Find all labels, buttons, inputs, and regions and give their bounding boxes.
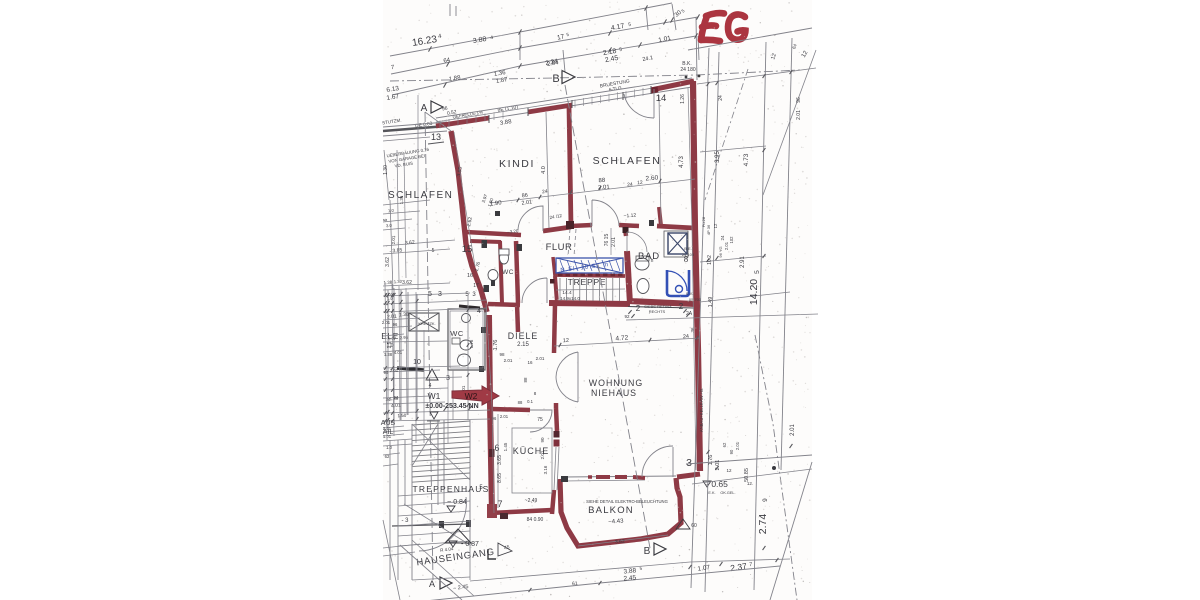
svg-text:2.01: 2.01 (500, 414, 509, 419)
svg-text:2.01: 2.01 (715, 460, 721, 471)
svg-text:12: 12 (637, 180, 643, 186)
svg-text:1.76: 1.76 (469, 339, 474, 348)
svg-text:16: 16 (467, 273, 473, 279)
svg-text:1.0: 1.0 (388, 208, 395, 214)
svg-text:3: 3 (686, 457, 692, 469)
svg-text:2.01: 2.01 (536, 356, 545, 361)
svg-text:2.01: 2.01 (382, 320, 391, 325)
svg-text:A: A (429, 579, 435, 589)
svg-text:SIEHE DETAIL ELEKTRO-BELEUCHTU: SIEHE DETAIL ELEKTRO-BELEUCHTUNG (586, 499, 668, 504)
svg-text:DIELE: DIELE (508, 331, 538, 341)
svg-text:WOHNUNG: WOHNUNG (589, 378, 643, 388)
svg-text:24 100: 24 100 (682, 252, 695, 257)
svg-text:4.01: 4.01 (394, 350, 403, 355)
svg-text:90: 90 (729, 449, 734, 454)
svg-text:2.45: 2.45 (623, 574, 637, 582)
svg-text:2.01: 2.01 (611, 237, 617, 247)
svg-text:TREPPENHAUS: TREPPENHAUS (413, 484, 490, 494)
svg-text:A: A (421, 103, 428, 114)
svg-text:2: 2 (636, 304, 641, 313)
svg-text:W2: W2 (465, 391, 478, 401)
svg-text:102: 102 (729, 236, 734, 244)
svg-text:88: 88 (523, 377, 528, 383)
svg-text:12: 12 (563, 338, 570, 344)
svg-text:24: 24 (683, 334, 690, 340)
svg-text:76 15: 76 15 (604, 234, 610, 247)
svg-text:1.26: 1.26 (680, 94, 686, 104)
svg-text:1.49: 1.49 (708, 297, 714, 308)
svg-text:62: 62 (722, 442, 727, 447)
svg-text:0.1: 0.1 (527, 399, 533, 404)
svg-text:10.2: 10.2 (707, 255, 713, 265)
svg-text:2.01: 2.01 (790, 424, 796, 436)
svg-text:6: 6 (494, 443, 499, 453)
svg-text:14.20: 14.20 (748, 279, 760, 305)
svg-text:16: 16 (527, 360, 533, 365)
svg-text:B: B (552, 73, 559, 85)
svg-text:4.0: 4.0 (541, 166, 547, 174)
svg-text:50.85: 50.85 (744, 468, 750, 482)
svg-text:ANBAU+KELLERW.+B.: ANBAU+KELLERW.+B. (699, 388, 704, 432)
svg-text:60: 60 (691, 523, 697, 529)
svg-text:1.30: 1.30 (383, 165, 389, 175)
svg-text:1.76: 1.76 (493, 340, 499, 351)
svg-text:90: 90 (540, 437, 545, 443)
svg-text:- 3: - 3 (401, 518, 409, 524)
svg-text:24 180: 24 180 (680, 67, 696, 73)
svg-text:24: 24 (718, 95, 724, 101)
svg-text:3.62: 3.62 (385, 257, 391, 267)
svg-text:~2.49: ~2.49 (525, 498, 538, 504)
svg-text:61: 61 (572, 581, 578, 588)
svg-text:24: 24 (542, 189, 549, 196)
svg-text:1.50: 1.50 (397, 413, 407, 419)
svg-text:24: 24 (627, 182, 633, 188)
svg-text:3.62: 3.62 (405, 239, 416, 246)
svg-text:E.K.: E.K. (708, 491, 715, 495)
svg-text:B: B (644, 546, 651, 557)
svg-text:E.K.: E.K. (686, 291, 694, 296)
svg-text:86: 86 (521, 193, 528, 200)
svg-text:14: 14 (656, 93, 667, 104)
svg-text:4.72: 4.72 (615, 335, 628, 343)
svg-text:3.0: 3.0 (386, 223, 393, 229)
svg-text:1.38: 1.38 (399, 312, 409, 319)
svg-text:2.60: 2.60 (645, 175, 658, 183)
svg-text:5: 5 (432, 248, 435, 254)
svg-text:2.01: 2.01 (598, 185, 611, 192)
svg-text:1.30: 1.30 (394, 279, 403, 285)
svg-text:5: 5 (428, 291, 432, 298)
svg-text:6: 6 (383, 218, 389, 221)
svg-text:SCHLAFEN: SCHLAFEN (593, 155, 662, 167)
svg-text:2.01: 2.01 (540, 450, 545, 459)
svg-text:RECHTS: RECHTS (649, 309, 666, 314)
svg-text:2.01: 2.01 (504, 358, 513, 363)
svg-text:~1.12: ~1.12 (623, 213, 636, 220)
svg-text:2.91: 2.91 (740, 256, 746, 268)
svg-text:4: 4 (477, 308, 481, 315)
svg-text:75: 75 (537, 417, 543, 423)
svg-text:96 YG: 96 YG (718, 246, 723, 257)
svg-text:3.62: 3.62 (615, 538, 626, 545)
svg-text:94: 94 (394, 395, 399, 400)
svg-text:3: 3 (438, 291, 442, 298)
svg-text:9: 9 (762, 498, 769, 502)
svg-text:4P 36: 4P 36 (706, 224, 711, 235)
svg-text:KREUZK.: KREUZK. (418, 321, 435, 326)
svg-text:17: 17 (473, 283, 479, 289)
svg-text:4: 4 (429, 383, 432, 389)
svg-text:1.17: 1.17 (388, 336, 397, 341)
svg-text:12: 12 (726, 468, 732, 473)
svg-text:1.36: 1.36 (399, 195, 404, 204)
svg-text:15: 15 (462, 244, 473, 255)
svg-text:10: 10 (413, 359, 421, 366)
svg-text:88: 88 (518, 400, 523, 405)
svg-text:3.16: 3.16 (543, 465, 548, 474)
svg-text:2.01: 2.01 (383, 426, 392, 431)
svg-text:98: 98 (499, 352, 505, 357)
svg-text:KINDI: KINDI (499, 158, 535, 170)
svg-text:92: 92 (624, 314, 630, 319)
svg-text:2.01: 2.01 (796, 110, 802, 120)
svg-text:05 700: 05 700 (689, 297, 702, 302)
svg-text:2.95: 2.95 (400, 335, 409, 340)
svg-text:8.65: 8.65 (497, 473, 503, 483)
svg-text:WC: WC (502, 269, 514, 276)
svg-text:~4.43: ~4.43 (608, 518, 624, 525)
svg-text:3.65: 3.65 (497, 455, 503, 465)
svg-text:1.45: 1.45 (503, 442, 508, 451)
svg-text:4.73: 4.73 (743, 153, 750, 166)
svg-text:B.E.: B.E. (684, 246, 692, 251)
svg-text:2.01: 2.01 (390, 368, 399, 373)
svg-text:84 0.90: 84 0.90 (527, 517, 544, 523)
svg-text:24: 24 (720, 235, 725, 241)
svg-text:96: 96 (796, 97, 802, 103)
svg-text:4.73: 4.73 (679, 156, 685, 168)
svg-text:62: 62 (385, 454, 390, 459)
svg-text:1.38: 1.38 (384, 352, 393, 357)
svg-text:96: 96 (393, 322, 398, 327)
svg-text:BALKON: BALKON (588, 505, 634, 516)
svg-text:BAD: BAD (638, 251, 660, 262)
svg-text:1.0: 1.0 (386, 445, 392, 450)
svg-text:13: 13 (431, 132, 441, 142)
svg-text:1.76: 1.76 (708, 455, 714, 466)
svg-text:5: 5 (754, 270, 761, 274)
svg-text:12: 12 (713, 223, 718, 228)
svg-text:OK.GEL.: OK.GEL. (720, 491, 735, 495)
svg-text:88: 88 (598, 178, 606, 184)
svg-text:2A: 2A (686, 311, 693, 317)
svg-text:±0.00-253.45 NN: ±0.00-253.45 NN (425, 403, 478, 410)
svg-text:3.95: 3.95 (715, 151, 721, 163)
svg-text:2.15: 2.15 (517, 342, 529, 348)
svg-text:~ 0.84: ~ 0.84 (447, 499, 467, 506)
svg-text:14.9x14.0: 14.9x14.0 (560, 296, 580, 301)
svg-text:WC: WC (450, 329, 464, 338)
